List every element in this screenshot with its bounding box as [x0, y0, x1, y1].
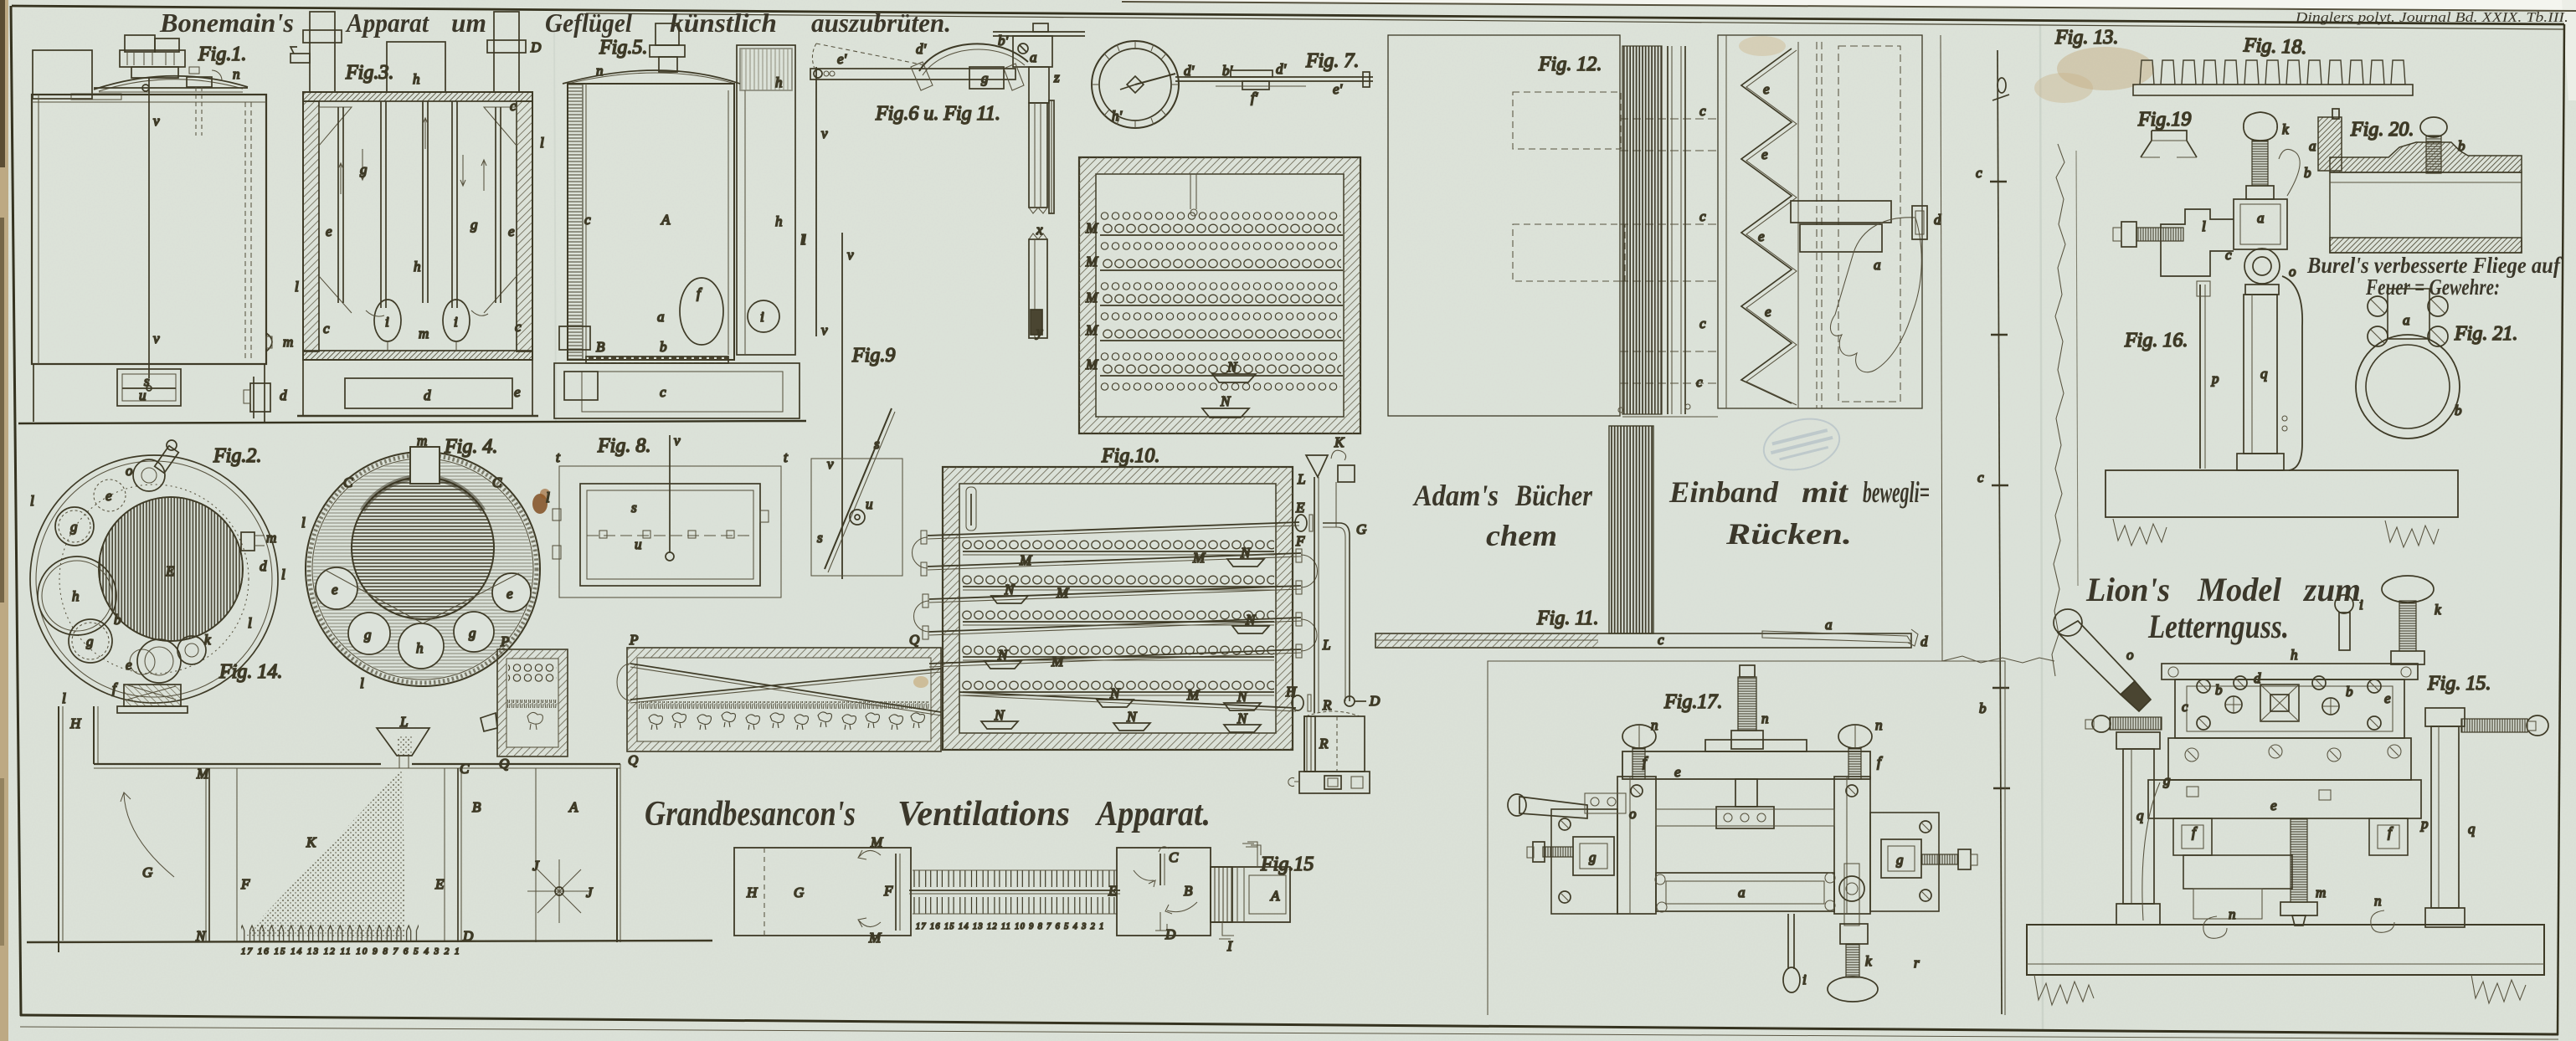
svg-text:c: c — [1658, 632, 1664, 648]
svg-text:H: H — [69, 715, 82, 731]
svg-text:G: G — [794, 885, 804, 900]
svg-text:g: g — [1896, 852, 1904, 868]
svg-text:c: c — [2182, 699, 2188, 715]
svg-text:l: l — [360, 675, 364, 691]
svg-text:N: N — [1126, 709, 1138, 725]
svg-text:D: D — [1165, 926, 1176, 942]
svg-text:h: h — [414, 259, 421, 274]
svg-text:Fig. 11.: Fig. 11. — [1536, 608, 1599, 629]
svg-text:d: d — [260, 558, 267, 574]
svg-text:v: v — [153, 113, 160, 129]
svg-text:d: d — [1920, 633, 1928, 649]
svg-text:F: F — [883, 883, 893, 899]
svg-text:m: m — [266, 530, 276, 546]
svg-text:D: D — [530, 39, 542, 55]
svg-text:N: N — [1220, 393, 1231, 409]
svg-text:c: c — [515, 319, 522, 335]
svg-text:d': d' — [1184, 63, 1195, 79]
svg-text:M: M — [870, 834, 883, 850]
svg-text:c: c — [660, 384, 666, 400]
svg-text:l: l — [281, 567, 285, 582]
svg-text:n: n — [2374, 893, 2382, 909]
svg-text:v: v — [821, 322, 828, 338]
svg-text:b: b — [2346, 684, 2353, 700]
svg-text:N: N — [1109, 685, 1121, 701]
svg-text:M: M — [1085, 290, 1098, 305]
svg-text:u: u — [866, 496, 873, 512]
svg-text:d: d — [2254, 670, 2261, 686]
svg-text:K: K — [1334, 434, 1345, 450]
svg-text:P: P — [629, 632, 638, 648]
svg-text:M: M — [1056, 585, 1069, 601]
svg-text:a: a — [2403, 312, 2410, 328]
svg-text:e': e' — [1333, 81, 1343, 97]
svg-text:v: v — [821, 126, 828, 141]
svg-text:g: g — [2163, 772, 2171, 788]
svg-text:c: c — [1699, 103, 1706, 119]
svg-text:c: c — [2225, 247, 2232, 263]
svg-text:s: s — [817, 530, 823, 546]
svg-text:b': b' — [1222, 63, 1233, 79]
svg-text:Lion'sModelzum: Lion'sModelzum — [2085, 571, 2361, 608]
svg-text:e': e' — [837, 51, 847, 67]
svg-text:E: E — [1295, 500, 1305, 515]
svg-text:e: e — [126, 657, 132, 673]
svg-text:c: c — [584, 212, 591, 228]
svg-text:C: C — [492, 474, 502, 490]
svg-text:C: C — [343, 474, 353, 490]
svg-text:B: B — [1184, 883, 1193, 899]
svg-text:N: N — [994, 707, 1005, 723]
svg-text:M: M — [1085, 220, 1098, 236]
svg-text:Dinglers polyt. Journal Bd. XX: Dinglers polyt. Journal Bd. XXIX. Tb.III… — [2295, 9, 2568, 25]
svg-text:v: v — [847, 247, 854, 263]
svg-text:M: M — [1085, 356, 1098, 372]
svg-text:d: d — [1934, 212, 1941, 228]
svg-text:G: G — [1356, 521, 1366, 537]
svg-text:N: N — [1245, 612, 1257, 628]
svg-text:Bonemain'sApparatumGeflügelkün: Bonemain'sApparatumGeflügelkünstlichausz… — [159, 8, 951, 38]
svg-text:N: N — [1226, 359, 1238, 375]
svg-text:p: p — [2211, 371, 2219, 387]
svg-text:R: R — [1319, 736, 1329, 751]
svg-text:F: F — [1295, 533, 1305, 549]
svg-text:Fig. 15.: Fig. 15. — [2427, 673, 2491, 695]
svg-text:M: M — [1186, 687, 1200, 703]
svg-text:l: l — [295, 279, 299, 295]
svg-text:u: u — [139, 387, 147, 403]
svg-text:l: l — [540, 135, 544, 151]
svg-text:N: N — [1237, 710, 1248, 726]
svg-text:A: A — [661, 212, 671, 228]
svg-text:chem: chem — [1486, 519, 1557, 552]
svg-text:b: b — [2304, 165, 2311, 181]
svg-text:g: g — [364, 627, 372, 643]
svg-text:M: M — [196, 766, 209, 782]
svg-text:Q: Q — [628, 752, 638, 768]
svg-text:M: M — [1192, 550, 1206, 566]
svg-text:N: N — [1240, 545, 1252, 561]
svg-text:b: b — [1979, 700, 1987, 716]
svg-text:N: N — [1237, 689, 1248, 705]
svg-text:M: M — [1085, 254, 1098, 269]
svg-text:E: E — [434, 876, 445, 892]
svg-text:M: M — [1085, 322, 1098, 338]
svg-text:Fig. 7.: Fig. 7. — [1305, 50, 1359, 72]
svg-text:e: e — [2270, 797, 2277, 813]
svg-text:Fig.2.: Fig.2. — [213, 445, 261, 467]
svg-text:A: A — [568, 799, 578, 815]
svg-text:c: c — [1699, 315, 1706, 331]
svg-text:d': d' — [916, 41, 927, 57]
svg-text:s: s — [631, 500, 637, 515]
svg-text:Fig.9: Fig.9 — [851, 345, 895, 367]
svg-text:C: C — [1169, 849, 1179, 865]
svg-text:a: a — [2257, 210, 2265, 226]
svg-text:a: a — [1825, 617, 1833, 633]
svg-text:e: e — [326, 223, 332, 239]
svg-text:e: e — [508, 223, 515, 239]
svg-text:l: l — [30, 493, 34, 509]
svg-text:r: r — [1914, 955, 1920, 971]
svg-text:Feuer = Gewehre:: Feuer = Gewehre: — [2365, 274, 2500, 300]
svg-text:c: c — [1976, 165, 1982, 181]
svg-text:n: n — [233, 66, 240, 82]
svg-text:e: e — [332, 582, 338, 597]
svg-text:a: a — [1874, 257, 1881, 273]
svg-text:q: q — [2260, 366, 2268, 382]
svg-text:g: g — [470, 217, 478, 233]
svg-text:e: e — [105, 488, 112, 504]
svg-text:F: F — [240, 876, 250, 892]
svg-text:v: v — [153, 331, 160, 346]
svg-text:Fig.19: Fig.19 — [2137, 109, 2191, 131]
svg-text:Fig.5.: Fig.5. — [599, 37, 647, 59]
svg-text:N: N — [195, 928, 207, 944]
svg-text:A: A — [1270, 888, 1280, 904]
svg-text:Fig. 14.: Fig. 14. — [219, 661, 282, 683]
svg-text:o: o — [2126, 647, 2134, 663]
svg-text:o: o — [126, 463, 133, 479]
svg-text:b: b — [2455, 403, 2462, 418]
svg-text:17 16 15 14 13 12 11 10 9 8 7: 17 16 15 14 13 12 11 10 9 8 7 6 5 4 3 2 … — [241, 946, 461, 956]
svg-text:i: i — [2359, 597, 2363, 613]
svg-text:b: b — [2215, 682, 2223, 698]
svg-text:c: c — [1977, 469, 1984, 485]
svg-text:k: k — [2435, 602, 2441, 618]
svg-text:c: c — [1696, 374, 1703, 390]
svg-text:e: e — [1674, 764, 1681, 780]
svg-text:Fig. 16.: Fig. 16. — [2124, 330, 2188, 351]
svg-text:d: d — [424, 387, 431, 403]
svg-text:Fig.6 u. Fig 11.: Fig.6 u. Fig 11. — [875, 103, 1000, 125]
svg-text:n: n — [1761, 710, 1769, 726]
svg-text:l: l — [546, 490, 550, 505]
svg-text:k: k — [2282, 121, 2289, 137]
svg-text:P: P — [500, 633, 509, 649]
svg-text:f': f' — [1251, 90, 1258, 105]
svg-text:c: c — [1699, 208, 1706, 224]
svg-text:Fig.17.: Fig.17. — [1663, 691, 1722, 713]
svg-text:m: m — [283, 334, 293, 350]
svg-text:Letternguss.: Letternguss. — [2147, 608, 2289, 645]
svg-text:l: l — [301, 515, 306, 531]
svg-text:o: o — [2289, 264, 2296, 279]
svg-text:i: i — [1802, 972, 1807, 987]
svg-text:Fig.10.: Fig.10. — [1101, 445, 1159, 467]
svg-text:g: g — [86, 633, 94, 649]
svg-text:B: B — [472, 799, 481, 815]
svg-text:D: D — [462, 928, 474, 944]
svg-text:u: u — [635, 536, 642, 552]
svg-text:g: g — [469, 625, 476, 641]
svg-text:y: y — [1035, 324, 1043, 340]
svg-text:k: k — [1865, 953, 1872, 969]
svg-text:K: K — [306, 834, 317, 850]
svg-text:v: v — [674, 433, 681, 449]
svg-text:M: M — [1051, 654, 1064, 669]
svg-text:Q: Q — [909, 632, 919, 648]
svg-text:17 16 15 14 13 12 11 10 9 8 7: 17 16 15 14 13 12 11 10 9 8 7 6 5 4 3 2 … — [916, 922, 1105, 931]
svg-text:b: b — [660, 339, 667, 355]
svg-text:N: N — [1004, 582, 1015, 597]
svg-text:d': d' — [1276, 61, 1287, 77]
svg-text:l: l — [62, 690, 66, 706]
svg-text:a: a — [657, 309, 665, 325]
svg-text:g: g — [70, 519, 78, 535]
svg-text:B: B — [596, 339, 605, 355]
svg-text:a: a — [1738, 885, 1746, 900]
svg-text:Fig. 12.: Fig. 12. — [1538, 54, 1602, 75]
svg-text:q: q — [2136, 808, 2144, 823]
svg-text:Fig. 13.: Fig. 13. — [2054, 27, 2118, 49]
svg-text:E: E — [165, 563, 175, 579]
svg-text:Fig. 8.: Fig. 8. — [597, 435, 650, 457]
svg-text:Fig. 18.: Fig. 18. — [2243, 34, 2307, 59]
svg-text:Fig.15: Fig.15 — [1260, 854, 1314, 875]
svg-text:m: m — [2316, 885, 2326, 900]
svg-text:L: L — [1297, 471, 1305, 487]
svg-text:g: g — [1589, 849, 1597, 865]
svg-text:i: i — [454, 314, 458, 330]
svg-text:M: M — [868, 930, 882, 946]
svg-text:Rücken.: Rücken. — [1725, 517, 1852, 551]
svg-text:a: a — [2309, 138, 2316, 154]
svg-text:M: M — [1019, 552, 1032, 568]
svg-text:l: l — [248, 615, 252, 631]
svg-text:h: h — [72, 588, 80, 604]
svg-text:h: h — [2291, 647, 2298, 663]
svg-text:Fig. 20.: Fig. 20. — [2350, 119, 2414, 141]
svg-text:m: m — [419, 326, 429, 341]
svg-text:h: h — [775, 74, 783, 90]
svg-text:d: d — [280, 387, 287, 403]
svg-text:D: D — [1369, 693, 1381, 709]
svg-text:H: H — [746, 885, 758, 900]
svg-text:e: e — [506, 586, 513, 602]
svg-text:Fig.1.: Fig.1. — [198, 44, 246, 65]
svg-text:H: H — [1285, 684, 1298, 700]
svg-text:g: g — [981, 70, 989, 86]
svg-text:Fig. 4.: Fig. 4. — [444, 436, 497, 458]
svg-text:x: x — [1036, 222, 1043, 238]
svg-text:n: n — [2229, 906, 2236, 922]
svg-text:z: z — [1053, 69, 1060, 85]
svg-text:h: h — [775, 213, 783, 229]
svg-text:c: c — [510, 98, 517, 114]
svg-text:e: e — [1761, 146, 1768, 162]
svg-text:h': h' — [1112, 108, 1123, 124]
svg-text:L: L — [399, 714, 408, 730]
svg-text:e: e — [1763, 81, 1770, 97]
svg-text:e: e — [1765, 304, 1771, 320]
svg-text:i: i — [385, 314, 389, 330]
svg-text:L: L — [1322, 637, 1330, 653]
svg-text:G: G — [142, 864, 152, 880]
svg-text:e: e — [514, 384, 521, 400]
svg-text:o: o — [1629, 806, 1637, 822]
svg-text:C: C — [460, 761, 470, 777]
svg-text:n: n — [1875, 717, 1883, 733]
svg-text:g: g — [360, 162, 368, 177]
svg-text:Q: Q — [499, 756, 509, 772]
svg-text:h: h — [413, 71, 420, 87]
svg-text:N: N — [997, 647, 1009, 663]
svg-text:s: s — [874, 436, 880, 452]
svg-text:h: h — [416, 640, 424, 656]
svg-text:k: k — [204, 632, 211, 648]
svg-text:l: l — [802, 232, 806, 248]
svg-text:a: a — [1030, 49, 1037, 65]
svg-text:R: R — [1322, 697, 1332, 713]
svg-text:l: l — [2202, 218, 2206, 234]
svg-text:b': b' — [998, 33, 1009, 49]
svg-text:e: e — [2384, 690, 2391, 706]
svg-text:Grandbesancon'sVentilationsApp: Grandbesancon'sVentilationsApparat. — [645, 795, 1211, 833]
svg-text:i: i — [760, 309, 764, 325]
svg-text:Fig. 21.: Fig. 21. — [2454, 323, 2517, 345]
svg-text:n: n — [1651, 717, 1658, 733]
svg-text:c: c — [323, 321, 330, 336]
svg-text:q: q — [2468, 821, 2476, 837]
svg-text:p: p — [2420, 816, 2429, 832]
svg-text:b: b — [114, 612, 121, 628]
svg-text:m: m — [417, 433, 427, 449]
svg-text:e: e — [1758, 228, 1765, 244]
